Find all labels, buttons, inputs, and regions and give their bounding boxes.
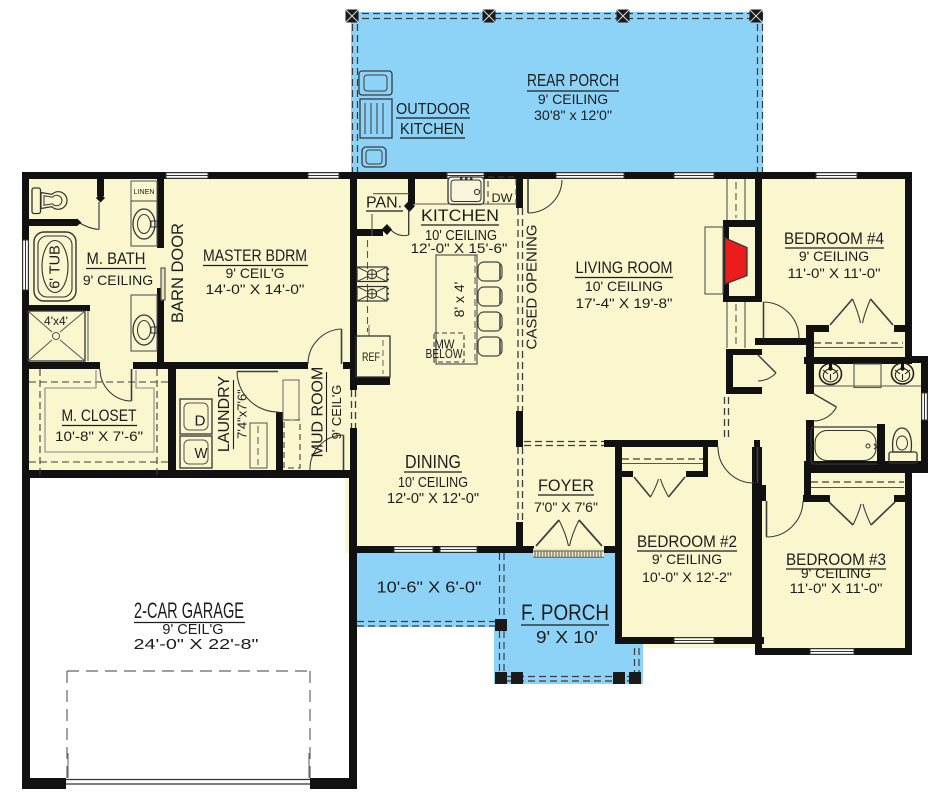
svg-text:9' CEILING: 9' CEILING [83,272,153,288]
svg-text:9' CEILING: 9' CEILING [538,91,608,107]
svg-text:9' CEILING: 9' CEILING [799,248,869,264]
svg-text:M. BATH: M. BATH [87,250,146,268]
svg-text:REAR PORCH: REAR PORCH [527,70,619,90]
svg-text:BEDROOM #2: BEDROOM #2 [637,533,737,551]
svg-text:7'0" X 7'6": 7'0" X 7'6" [534,499,598,515]
svg-text:10'-0" X 12'-2": 10'-0" X 12'-2" [642,569,732,585]
svg-text:9' CEIL'G: 9' CEIL'G [225,265,284,281]
svg-text:BARN DOOR: BARN DOOR [169,223,187,323]
svg-text:10'-8" X 7'-6": 10'-8" X 7'-6" [55,428,143,444]
svg-text:30'8" x 12'0": 30'8" x 12'0" [534,107,612,123]
svg-text:9' CEILING: 9' CEILING [801,565,871,581]
svg-text:10'-6" X 6'-0": 10'-6" X 6'-0" [377,580,482,597]
svg-text:11'-0" X 11'-0": 11'-0" X 11'-0" [790,580,883,596]
svg-text:KITCHEN: KITCHEN [421,206,499,225]
svg-text:2-CAR GARAGE: 2-CAR GARAGE [134,598,244,623]
svg-text:D: D [195,413,206,430]
svg-text:LINEN: LINEN [134,189,155,196]
svg-text:12'-0" X 12'-0": 12'-0" X 12'-0" [387,491,479,507]
svg-text:4'x4': 4'x4' [44,314,68,328]
svg-text:9' X 10': 9' X 10' [536,627,598,647]
svg-text:MASTER BDRM: MASTER BDRM [203,247,307,265]
svg-text:14'-0" X 14'-0": 14'-0" X 14'-0" [206,281,305,297]
svg-text:BELOW: BELOW [426,347,463,361]
svg-text:PAN.: PAN. [366,195,402,212]
svg-text:8' x 4': 8' x 4' [451,282,467,318]
svg-text:OUTDOOR: OUTDOOR [396,101,470,118]
svg-text:9' CEILING: 9' CEILING [652,551,722,567]
svg-text:W: W [195,445,209,462]
svg-text:9' CEIL'G: 9' CEIL'G [329,385,344,440]
svg-text:9' CEIL'G: 9' CEIL'G [162,622,223,638]
svg-text:KITCHEN: KITCHEN [400,121,464,138]
svg-text:MUD ROOM: MUD ROOM [310,367,327,458]
svg-text:12'-0" X 15'-6": 12'-0" X 15'-6" [411,240,508,256]
svg-text:11'-0" X 11'-0": 11'-0" X 11'-0" [788,265,881,281]
svg-text:LIVING ROOM: LIVING ROOM [576,259,673,277]
svg-text:DW: DW [492,191,514,205]
svg-text:10' CEILING: 10' CEILING [398,475,468,491]
svg-text:CASED OPENING: CASED OPENING [524,224,541,349]
svg-text:LAUNDRY: LAUNDRY [216,376,233,453]
svg-text:REF: REF [362,350,380,364]
svg-text:24'-0" X 22'-8": 24'-0" X 22'-8" [134,637,259,653]
svg-text:DINING: DINING [405,452,461,472]
svg-text:10' CEILING: 10' CEILING [585,278,663,294]
svg-text:BEDROOM #4: BEDROOM #4 [784,230,884,248]
svg-text:7'4"x7'6": 7'4"x7'6" [235,389,250,439]
svg-text:FOYER: FOYER [538,477,594,495]
svg-text:6' TUB: 6' TUB [48,245,64,289]
svg-text:17'-4" X 19'-8": 17'-4" X 19'-8" [576,295,673,311]
svg-text:M. CLOSET: M. CLOSET [62,407,137,425]
svg-text:F. PORCH: F. PORCH [521,600,609,625]
